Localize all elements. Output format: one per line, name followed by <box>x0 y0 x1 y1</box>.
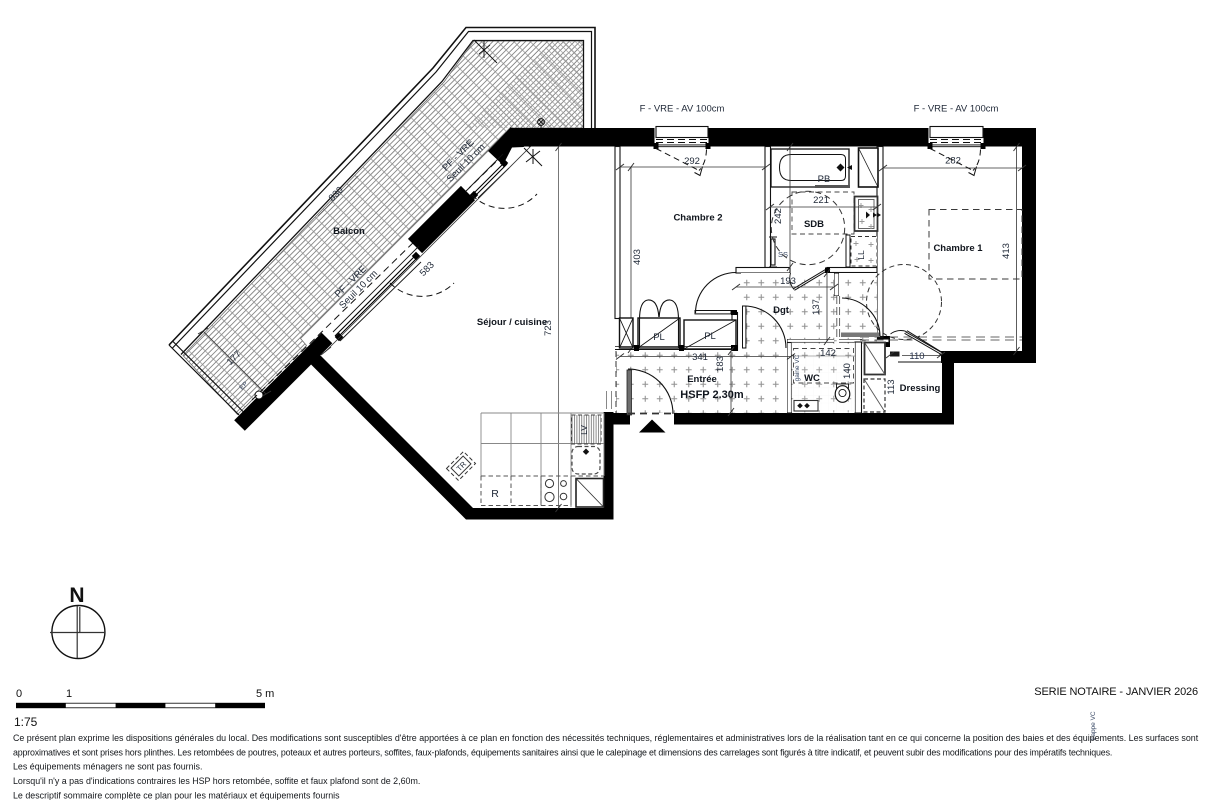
svg-text:221: 221 <box>813 195 829 206</box>
svg-text:Lorsqu'il n'y a pas d'indicati: Lorsqu'il n'y a pas d'indications contra… <box>13 776 420 786</box>
svg-text:Entrée: Entrée <box>687 374 717 385</box>
svg-text:Chambre 1: Chambre 1 <box>933 243 983 254</box>
svg-text:Les équipements ménagers ne so: Les équipements ménagers ne sont pas fou… <box>13 762 202 772</box>
svg-text:142: 142 <box>820 348 836 359</box>
svg-text:113: 113 <box>886 379 897 394</box>
svg-text:LL: LL <box>856 250 866 260</box>
svg-text:282: 282 <box>945 156 961 167</box>
svg-text:0: 0 <box>16 688 22 700</box>
svg-text:approximatives et sont prises: approximatives et sont prises hors plint… <box>13 748 1112 758</box>
svg-text:N: N <box>69 584 84 607</box>
svg-text:110: 110 <box>909 351 924 362</box>
svg-text:Dressing: Dressing <box>900 383 941 394</box>
svg-text:183: 183 <box>715 356 726 372</box>
svg-text:5 m: 5 m <box>256 688 274 700</box>
svg-text:1: 1 <box>66 688 72 700</box>
svg-text:Ce présent plan exprime les di: Ce présent plan exprime les dispositions… <box>13 733 1199 743</box>
svg-text:341: 341 <box>692 352 708 363</box>
svg-text:242: 242 <box>773 208 784 224</box>
svg-text:F - VRE - AV 100cm: F - VRE - AV 100cm <box>914 104 999 115</box>
svg-text:SERIE NOTAIRE - JANVIER 2026: SERIE NOTAIRE - JANVIER 2026 <box>1034 686 1198 698</box>
svg-text:413: 413 <box>1001 243 1012 259</box>
svg-text:PB: PB <box>818 174 831 185</box>
svg-text:723: 723 <box>543 320 554 336</box>
svg-text:Le descriptif sommaire complèt: Le descriptif sommaire complète ce plan … <box>13 791 340 800</box>
svg-text:SDB: SDB <box>804 219 824 230</box>
svg-text:LV: LV <box>579 425 589 435</box>
svg-text:PL: PL <box>704 331 716 342</box>
svg-text:403: 403 <box>632 249 643 265</box>
svg-text:Séjour / cuisine: Séjour / cuisine <box>477 317 547 328</box>
svg-text:Balcon: Balcon <box>333 226 365 237</box>
svg-text:292: 292 <box>684 156 700 167</box>
svg-text:Dgt: Dgt <box>773 305 790 316</box>
svg-text:R: R <box>491 488 499 500</box>
svg-text:193: 193 <box>780 276 796 287</box>
svg-text:PL: PL <box>653 332 665 343</box>
svg-text:HSFP 2.30m: HSFP 2.30m <box>680 389 744 401</box>
svg-text:1:75: 1:75 <box>14 715 38 729</box>
svg-text:WC: WC <box>804 373 820 384</box>
svg-text:137: 137 <box>811 299 822 315</box>
svg-text:140: 140 <box>842 363 853 379</box>
svg-text:F - VRE - AV 100cm: F - VRE - AV 100cm <box>640 104 725 115</box>
svg-text:Chambre 2: Chambre 2 <box>673 213 722 224</box>
svg-text:gaine VC: gaine VC <box>794 354 801 381</box>
